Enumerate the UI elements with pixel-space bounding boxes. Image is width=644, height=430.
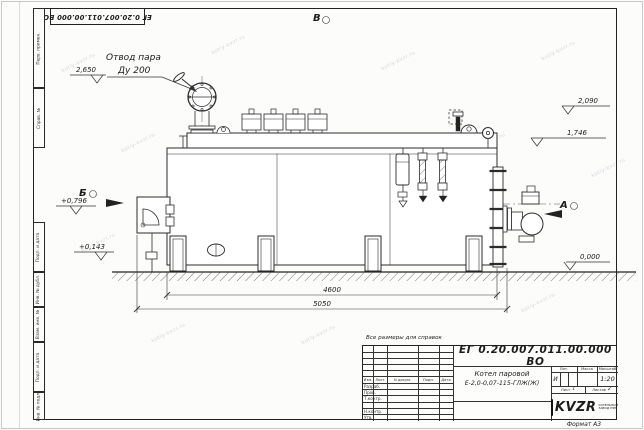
col-header-izm: Изм. bbox=[363, 376, 373, 383]
sheets-cell: Листов 2 bbox=[585, 386, 618, 393]
mass-header: Масса bbox=[577, 366, 597, 372]
elevation-1746: 1,746 bbox=[567, 129, 588, 137]
sheet-label: Лист bbox=[561, 388, 570, 392]
grid-line bbox=[568, 372, 569, 386]
sheets-number: 2 bbox=[608, 387, 611, 392]
dimension-4600: 4600 bbox=[323, 286, 341, 294]
col-header-podp: Подп. bbox=[418, 376, 439, 383]
sheet-number: 1 bbox=[572, 387, 575, 392]
view-label-b: Б bbox=[79, 188, 87, 199]
safety-valve-boxes bbox=[217, 109, 327, 133]
grid-line bbox=[363, 364, 453, 365]
kvzr-brand-line2: ЗАВОД РЭП bbox=[598, 407, 618, 410]
grid-line bbox=[453, 401, 551, 402]
elevation-0000: 0,000 bbox=[580, 253, 601, 261]
row-prov: Пров. bbox=[364, 390, 387, 395]
dimension-5050: 5050 bbox=[313, 300, 331, 308]
product-designation: Е-2,0-0,07-115-ГЛЖ(Ж) bbox=[453, 378, 551, 389]
row-tkontr: Т.контр. bbox=[364, 396, 387, 401]
steam-outlet-valve bbox=[173, 71, 216, 133]
reference-note: Все размеры для справок bbox=[366, 335, 456, 341]
format-label: Формат А3 bbox=[552, 421, 616, 428]
grid-line bbox=[363, 370, 453, 371]
kvzr-brand-subtitle: КОТЕЛЬНЫЙ ЗАВОД РЭП bbox=[598, 404, 618, 411]
callout-otvod-para: Отвод пара bbox=[106, 53, 161, 63]
col-header-data: Дата bbox=[439, 376, 453, 383]
view-arrow-a bbox=[544, 210, 562, 218]
view-circle-v bbox=[323, 17, 330, 24]
scale-value: 1:20 bbox=[597, 372, 618, 386]
elevation-0143: +0,143 bbox=[79, 243, 105, 251]
view-label-a: А bbox=[559, 200, 568, 211]
view-arrow-b bbox=[106, 199, 124, 207]
row-utv: Утв. bbox=[364, 415, 387, 420]
grid-line bbox=[560, 372, 561, 386]
burner-assembly bbox=[503, 186, 543, 242]
drawing-sheet: kotly-kvzr.ru kotly-kvzr.ru kotly-kvzr.r… bbox=[0, 0, 644, 430]
row-razrab: Разраб. bbox=[364, 384, 387, 389]
view-label-v: В bbox=[313, 13, 321, 24]
kvzr-brand: KVZR bbox=[555, 400, 597, 415]
grid-line bbox=[363, 402, 453, 403]
view-circle-a bbox=[571, 203, 578, 210]
kvzr-logo-icon bbox=[551, 399, 553, 416]
col-header-list: Лист bbox=[373, 376, 387, 383]
elevation-2650: 2,650 bbox=[76, 66, 97, 74]
row-nkontr: Н.контр. bbox=[364, 409, 387, 414]
sheets-label: Листов bbox=[592, 388, 606, 392]
elevation-2090: 2,090 bbox=[578, 97, 599, 105]
view-circle-b bbox=[90, 191, 97, 198]
company-logo-cell: KVZR КОТЕЛЬНЫЙ ЗАВОД РЭП bbox=[551, 393, 618, 421]
callout-du-200: Ду 200 bbox=[117, 66, 151, 76]
title-block: ЕГ 0.20.007.011.00.000 ВО Котел паровой … bbox=[362, 345, 617, 420]
lit-value: И bbox=[551, 372, 560, 386]
grid-line bbox=[363, 358, 453, 359]
grid-line bbox=[363, 352, 453, 353]
col-header-doc: N докум. bbox=[387, 376, 418, 383]
sheet-cell: Лист 1 bbox=[551, 386, 585, 393]
ground-line bbox=[112, 272, 636, 281]
titleblock-doc-number: ЕГ 0.20.007.011.00.000 ВО bbox=[453, 346, 618, 366]
